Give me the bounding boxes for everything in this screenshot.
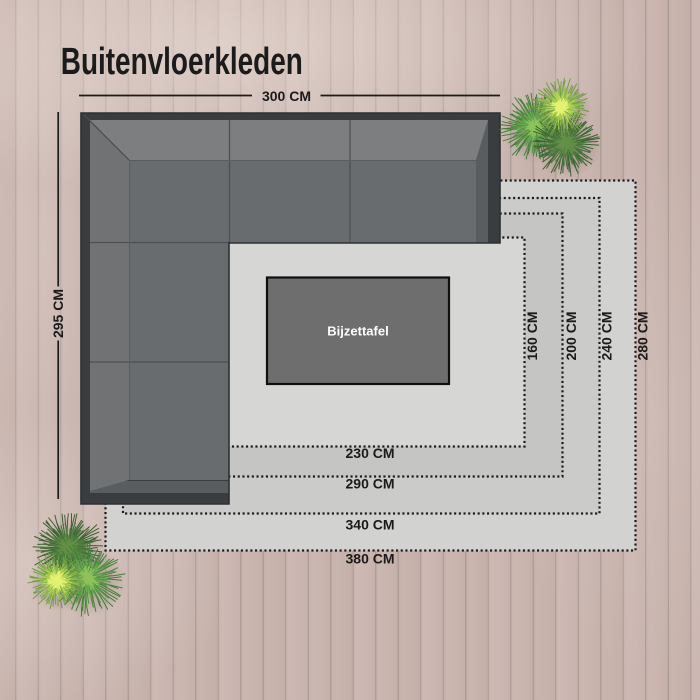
svg-text:295 CM: 295 CM [50,289,66,338]
svg-text:Buitenvloerkleden: Buitenvloerkleden [61,41,303,83]
svg-text:290 CM: 290 CM [346,475,395,491]
svg-text:340 CM: 340 CM [346,516,395,532]
svg-text:200 CM: 200 CM [563,311,579,360]
svg-text:230 CM: 230 CM [346,445,395,461]
svg-text:160 CM: 160 CM [524,311,540,360]
svg-text:280 CM: 280 CM [635,311,651,360]
svg-text:Bijzettafel: Bijzettafel [327,324,388,339]
svg-text:240 CM: 240 CM [599,311,615,360]
svg-text:380 CM: 380 CM [346,550,395,566]
svg-text:300 CM: 300 CM [262,88,311,104]
